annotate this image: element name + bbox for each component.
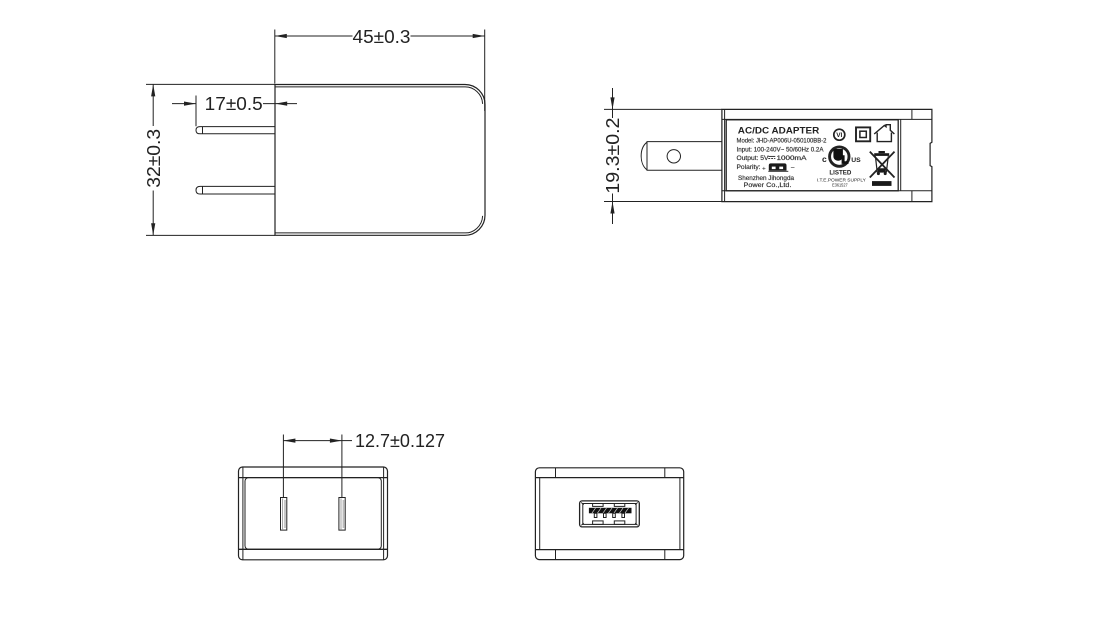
svg-text:17±0.5: 17±0.5: [205, 94, 263, 114]
svg-text:LISTED: LISTED: [829, 170, 851, 177]
svg-text:Model: JHD-AP006U-050100BB-2: Model: JHD-AP006U-050100BB-2: [737, 137, 828, 144]
svg-text:AC/DC ADAPTER: AC/DC ADAPTER: [738, 125, 820, 135]
svg-text:Power Co.,Ltd.: Power Co.,Ltd.: [744, 182, 792, 189]
svg-text:Shenzhen Jihongda: Shenzhen Jihongda: [738, 175, 795, 182]
svg-text:Polarity:: Polarity:: [737, 164, 761, 171]
svg-text:VI: VI: [836, 132, 842, 139]
svg-text:45±0.3: 45±0.3: [353, 27, 411, 47]
svg-text:1000mA: 1000mA: [777, 155, 808, 162]
svg-text:−: −: [791, 163, 796, 172]
svg-text:US: US: [851, 157, 861, 164]
svg-text:12.7±0.127: 12.7±0.127: [355, 431, 445, 451]
svg-text:Input: 100-240V~ 50/60Hz 0.2: Input: 100-240V~ 50/60Hz 0.2A: [737, 146, 825, 153]
svg-text:E361527: E361527: [832, 183, 848, 188]
svg-text:c: c: [822, 154, 827, 164]
svg-text:32±0.3: 32±0.3: [144, 129, 164, 188]
svg-text:+: +: [762, 166, 766, 173]
svg-text:Output: 5V: Output: 5V: [737, 155, 770, 162]
svg-text:19.3±0.2: 19.3±0.2: [603, 118, 623, 194]
